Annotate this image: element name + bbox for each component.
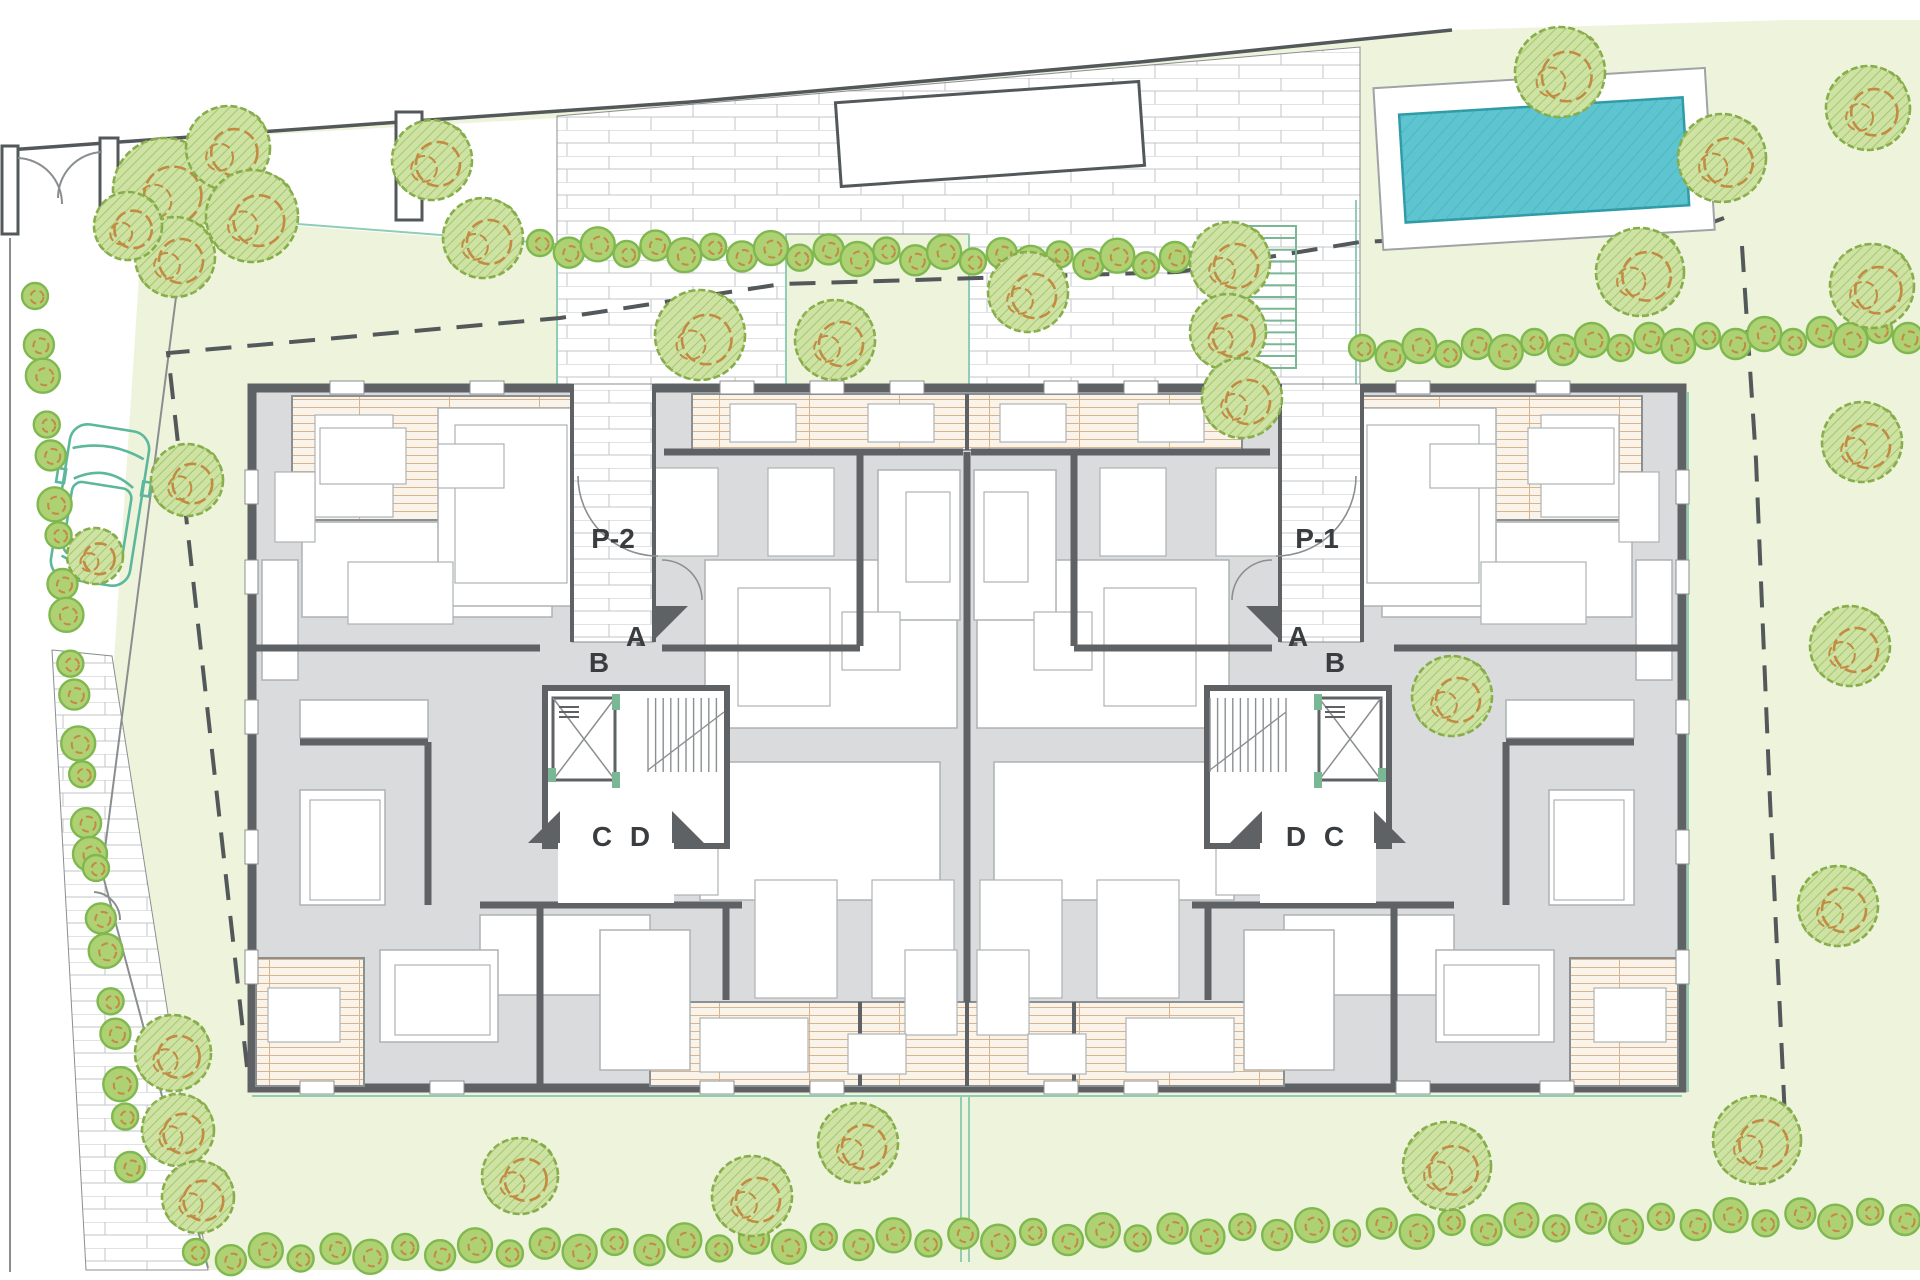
label-entry-p1: P-1 xyxy=(1295,523,1339,554)
furniture-item xyxy=(768,468,834,556)
elevator-door-accent xyxy=(612,772,620,788)
furniture-item xyxy=(1000,404,1066,442)
furniture-item xyxy=(1528,428,1614,484)
bush-body xyxy=(1471,1215,1501,1245)
site-plan-drawing: P-2 P-1 A B A B C D D C xyxy=(0,0,1920,1280)
hedge-bush-icon xyxy=(1721,329,1751,359)
hedge-bush-icon xyxy=(1575,323,1609,357)
window-opening xyxy=(1676,700,1689,734)
hedge-bush-icon xyxy=(787,245,813,271)
hedge-bush-icon xyxy=(61,726,95,760)
tree-icon xyxy=(1412,656,1492,736)
bush-body xyxy=(38,487,72,521)
hedge-bush-icon xyxy=(425,1240,455,1270)
bush-body xyxy=(1714,1198,1748,1232)
bush-body xyxy=(100,1019,130,1049)
tree-icon xyxy=(142,1094,214,1166)
hedge-bush-icon xyxy=(530,1229,560,1259)
bush-body xyxy=(948,1219,978,1249)
hedge-bush-icon xyxy=(1661,329,1695,363)
tree-icon xyxy=(443,198,523,278)
label-entry-p2: P-2 xyxy=(591,523,635,554)
elevator-plate-text xyxy=(1325,711,1345,713)
tree-icon xyxy=(482,1138,558,1214)
bush-body xyxy=(1462,329,1492,359)
bush-body xyxy=(1575,323,1609,357)
furniture-item xyxy=(1034,612,1092,670)
hedge-bush-icon xyxy=(392,1234,418,1260)
bush-body xyxy=(71,808,101,838)
hedge-bush-icon xyxy=(1548,335,1578,365)
hedge-bush-icon xyxy=(1376,341,1406,371)
tree-canopy-hatch xyxy=(1515,27,1605,117)
bush-body xyxy=(634,1235,664,1265)
bush-body xyxy=(877,1218,911,1252)
elevator-door-accent xyxy=(1314,694,1322,710)
window-opening xyxy=(1124,381,1158,394)
label-door-d-left: D xyxy=(630,821,650,852)
hedge-bush-icon xyxy=(1681,1210,1711,1240)
furniture-item xyxy=(848,1034,906,1074)
hedge-bush-icon xyxy=(115,1152,145,1182)
tree-icon xyxy=(1826,66,1910,150)
tree-icon xyxy=(151,444,223,516)
room xyxy=(300,700,428,738)
tree-icon xyxy=(1713,1096,1801,1184)
label-door-a-right: A xyxy=(1288,621,1308,652)
bush-body xyxy=(1160,242,1190,272)
furniture-item xyxy=(755,880,837,998)
hedge-bush-icon xyxy=(915,1230,941,1256)
bush-body xyxy=(1262,1220,1292,1250)
elevator-plate-text xyxy=(559,711,579,713)
window-opening xyxy=(720,381,754,394)
hedge-bush-icon xyxy=(1694,323,1720,349)
hedge-bush-icon xyxy=(98,988,124,1014)
bush-body xyxy=(1489,335,1523,369)
hedge-bush-icon xyxy=(563,1235,597,1269)
bush-body xyxy=(115,1152,145,1182)
window-opening xyxy=(1044,381,1078,394)
furniture-item xyxy=(1100,468,1166,556)
hedge-bush-icon xyxy=(1609,1210,1643,1244)
hedge-bush-icon xyxy=(814,234,844,264)
hedge-bush-icon xyxy=(1893,323,1920,353)
hedge-bush-icon xyxy=(877,1218,911,1252)
furniture-item xyxy=(310,800,380,900)
hedge-bush-icon xyxy=(26,359,60,393)
hedge-bush-icon xyxy=(1402,329,1436,363)
furniture-item xyxy=(395,965,490,1035)
furniture-item xyxy=(268,988,340,1042)
window-opening xyxy=(245,830,258,864)
bush-body xyxy=(458,1228,492,1262)
hedge-bush-icon xyxy=(86,903,116,933)
hedge-bush-icon xyxy=(1634,323,1664,353)
hedge-bush-icon xyxy=(34,412,60,438)
window-opening xyxy=(470,381,504,394)
furniture-item xyxy=(1138,404,1204,442)
elevator-plate-text xyxy=(1325,716,1345,718)
bush-body xyxy=(1681,1210,1711,1240)
hedge-bush-icon xyxy=(112,1104,138,1130)
tree-icon xyxy=(392,120,472,200)
bush-body xyxy=(1548,335,1578,365)
entrance-niche[interactable] xyxy=(558,843,674,903)
furniture-item xyxy=(906,492,950,582)
room xyxy=(1506,700,1634,738)
hedge-bush-icon xyxy=(1818,1205,1852,1239)
bush-body xyxy=(1402,329,1436,363)
window-opening xyxy=(1536,381,1570,394)
hedge-bush-icon xyxy=(1521,329,1547,355)
furniture-item xyxy=(438,444,504,488)
hedge-bush-icon xyxy=(1890,1205,1920,1235)
elevator-door-accent xyxy=(1314,772,1322,788)
bush-body xyxy=(425,1240,455,1270)
window-opening xyxy=(810,381,844,394)
hedge-bush-icon xyxy=(1608,335,1634,361)
window-opening xyxy=(700,1081,734,1094)
bush-body xyxy=(1053,1225,1083,1255)
hedge-bush-icon xyxy=(1435,341,1461,367)
hedge-bush-icon xyxy=(960,249,986,275)
window-opening xyxy=(245,560,258,594)
bush-body xyxy=(353,1240,387,1274)
hedge-bush-icon xyxy=(1489,335,1523,369)
bush-body xyxy=(727,241,757,271)
window-opening xyxy=(1676,560,1689,594)
bush-body xyxy=(1576,1204,1606,1234)
bush-body xyxy=(772,1230,806,1264)
hedge-bush-icon xyxy=(46,522,72,548)
bush-body xyxy=(103,1067,137,1101)
tree-icon xyxy=(67,528,123,584)
bush-body xyxy=(1785,1199,1815,1229)
bush-body xyxy=(754,231,788,265)
bush-body xyxy=(1890,1205,1920,1235)
furniture-item xyxy=(1444,965,1539,1035)
hedge-bush-icon xyxy=(69,761,95,787)
hedge-bush-icon xyxy=(1190,1220,1224,1254)
hedge-bush-icon xyxy=(1780,329,1806,355)
hedge-bush-icon xyxy=(38,487,72,521)
elevator-plate-text xyxy=(1325,706,1345,708)
furniture-item xyxy=(1594,988,1666,1042)
bush-body xyxy=(1376,341,1406,371)
label-door-d-right: D xyxy=(1286,821,1306,852)
hedge-bush-icon xyxy=(873,238,899,264)
bush-body xyxy=(563,1235,597,1269)
hedge-bush-icon xyxy=(288,1245,314,1271)
furniture-item xyxy=(984,492,1028,582)
window-opening xyxy=(1676,470,1689,504)
hedge-bush-icon xyxy=(1020,1219,1046,1245)
tree-icon xyxy=(1515,27,1605,117)
furniture-item xyxy=(1126,1018,1234,1072)
bush-body xyxy=(1893,323,1920,353)
room xyxy=(700,762,940,900)
hedge-bush-icon xyxy=(1133,252,1159,278)
hedge-bush-icon xyxy=(216,1245,246,1275)
room xyxy=(1244,930,1334,1070)
hedge-bush-icon xyxy=(667,1223,701,1257)
hedge-bush-icon xyxy=(1367,1209,1397,1239)
tree-icon xyxy=(655,290,745,380)
hedge-bush-icon xyxy=(706,1235,732,1261)
hedge-bush-icon xyxy=(1073,249,1103,279)
hedge-bush-icon xyxy=(1543,1215,1569,1241)
bush-body xyxy=(1295,1208,1329,1242)
furniture-item xyxy=(905,950,957,1035)
label-door-c-right: C xyxy=(1324,821,1344,852)
hedge-bush-icon xyxy=(1752,1210,1778,1236)
furniture-item xyxy=(348,562,453,624)
window-opening xyxy=(1676,830,1689,864)
hedge-bush-icon xyxy=(22,283,48,309)
tree-icon xyxy=(795,300,875,380)
bush-body xyxy=(61,726,95,760)
bush-body xyxy=(1818,1205,1852,1239)
hedge-bush-icon xyxy=(1158,1214,1188,1244)
hedge-bush-icon xyxy=(1086,1213,1120,1247)
tree-icon xyxy=(162,1161,234,1233)
tree-icon xyxy=(1403,1122,1491,1210)
hedge-bush-icon xyxy=(1053,1225,1083,1255)
hedge-bush-icon xyxy=(844,1230,874,1260)
hedge-bush-icon xyxy=(614,241,640,267)
hedge-bush-icon xyxy=(497,1240,523,1266)
tree-icon xyxy=(1190,222,1270,302)
hedge-bush-icon xyxy=(948,1219,978,1249)
hedge-bush-icon xyxy=(100,1019,130,1049)
tree-icon xyxy=(1190,294,1266,370)
tree-icon xyxy=(135,1015,211,1091)
hedge-bush-icon xyxy=(1400,1215,1434,1249)
window-opening xyxy=(1540,1081,1574,1094)
window-opening xyxy=(430,1081,464,1094)
hedge-bush-icon xyxy=(640,231,670,261)
hedge-bush-icon xyxy=(249,1233,283,1267)
hedge-bush-icon xyxy=(1648,1204,1674,1230)
hedge-bush-icon xyxy=(634,1235,664,1265)
furniture-item xyxy=(1216,468,1282,556)
hedge-bush-icon xyxy=(1349,335,1375,361)
bush-body xyxy=(1609,1210,1643,1244)
bush-body xyxy=(640,231,670,261)
room xyxy=(262,560,298,680)
window-opening xyxy=(1124,1081,1158,1094)
window-opening xyxy=(245,470,258,504)
pool-water-hatch xyxy=(1399,97,1689,222)
room xyxy=(994,762,1234,900)
bush-body xyxy=(581,227,615,261)
bush-body xyxy=(1073,249,1103,279)
bush-body xyxy=(1661,329,1695,363)
hedge-bush-icon xyxy=(700,234,726,260)
hedge-bush-icon xyxy=(1262,1220,1292,1250)
tree-icon xyxy=(1596,228,1684,316)
window-opening xyxy=(245,950,258,984)
tree-icon xyxy=(1798,866,1878,946)
bush-body xyxy=(814,234,844,264)
hedge-bush-icon xyxy=(527,230,553,256)
window-opening xyxy=(330,381,364,394)
hedge-bush-icon xyxy=(83,855,109,881)
bush-body xyxy=(36,440,66,470)
elevator-door-accent xyxy=(548,768,556,782)
room xyxy=(600,930,690,1070)
hedge-bush-icon xyxy=(458,1228,492,1262)
hedge-bush-icon xyxy=(1714,1198,1748,1232)
label-door-c-left: C xyxy=(592,821,612,852)
bush-body xyxy=(59,680,89,710)
bush-body xyxy=(26,359,60,393)
hedge-bush-icon xyxy=(602,1229,628,1255)
bush-body xyxy=(1721,329,1751,359)
furniture-item xyxy=(977,950,1029,1035)
hedge-bush-icon xyxy=(49,598,83,632)
bush-body xyxy=(86,903,116,933)
tree-icon xyxy=(988,252,1068,332)
hedge-bush-icon xyxy=(321,1234,351,1264)
hedge-bush-icon xyxy=(1439,1209,1465,1235)
hedge-bush-icon xyxy=(900,245,930,275)
furniture-item xyxy=(842,612,900,670)
furniture-item xyxy=(1619,472,1659,542)
hedge-bush-icon xyxy=(554,238,584,268)
entry-court-left[interactable] xyxy=(572,384,654,642)
bush-body xyxy=(841,242,875,276)
window-opening xyxy=(1044,1081,1078,1094)
hedge-bush-icon xyxy=(1160,242,1190,272)
hedge-bush-icon xyxy=(1857,1199,1883,1225)
bush-body xyxy=(321,1234,351,1264)
entrance-niche[interactable] xyxy=(1260,843,1376,903)
building-footprint: P-2 P-1 A B A B C D D C xyxy=(245,381,1689,1094)
elevator-door-accent xyxy=(612,694,620,710)
hedge-bush-icon xyxy=(1125,1225,1151,1251)
hedge-bush-icon xyxy=(1471,1215,1501,1245)
gate-post xyxy=(2,146,18,234)
bush-body xyxy=(1086,1213,1120,1247)
bush-body xyxy=(1634,323,1664,353)
hedge-bush-icon xyxy=(89,934,123,968)
bush-body xyxy=(249,1233,283,1267)
hedge-bush-icon xyxy=(927,235,961,269)
hedge-bush-icon xyxy=(1295,1208,1329,1242)
hedge-bush-icon xyxy=(103,1067,137,1101)
bush-body xyxy=(981,1225,1015,1259)
hedge-bush-icon xyxy=(1334,1220,1360,1246)
hedge-bush-icon xyxy=(1807,317,1837,347)
bush-body xyxy=(49,598,83,632)
bush-body xyxy=(667,238,701,272)
furniture-item xyxy=(730,404,796,442)
window-opening xyxy=(300,1081,334,1094)
elevator-door-accent xyxy=(1378,768,1386,782)
hedge-bush-icon xyxy=(1504,1203,1538,1237)
furniture-item xyxy=(700,1018,808,1072)
hedge-bush-icon xyxy=(811,1224,837,1250)
window-opening xyxy=(245,700,258,734)
window-opening xyxy=(1676,950,1689,984)
bush-body xyxy=(927,235,961,269)
tree-icon xyxy=(1810,606,1890,686)
bush-body xyxy=(1158,1214,1188,1244)
tree-icon xyxy=(712,1156,792,1236)
bush-body xyxy=(24,330,54,360)
hedge-bush-icon xyxy=(841,242,875,276)
bush-body xyxy=(1747,317,1781,351)
bush-body xyxy=(1400,1215,1434,1249)
window-opening xyxy=(1396,381,1430,394)
hedge-bush-icon xyxy=(71,808,101,838)
hedge-bush-icon xyxy=(57,651,83,677)
bush-body xyxy=(1190,1220,1224,1254)
window-opening xyxy=(810,1081,844,1094)
hedge-bush-icon xyxy=(1747,317,1781,351)
tree-icon xyxy=(94,192,162,260)
hedge-bush-icon xyxy=(772,1230,806,1264)
hedge-bush-icon xyxy=(1100,239,1134,273)
room xyxy=(1636,560,1672,680)
furniture-item xyxy=(868,404,934,442)
hedge-bush-icon xyxy=(1462,329,1492,359)
bush-body xyxy=(216,1245,246,1275)
hedge-bush-icon xyxy=(1229,1214,1255,1240)
elevator-plate-text xyxy=(559,706,579,708)
tree-icon xyxy=(1678,114,1766,202)
bush-body xyxy=(844,1230,874,1260)
bush-body xyxy=(900,245,930,275)
hedge-bush-icon xyxy=(727,241,757,271)
furniture-item xyxy=(1481,562,1586,624)
label-door-b-right: B xyxy=(1325,647,1345,678)
label-door-b-left: B xyxy=(589,647,609,678)
window-opening xyxy=(890,381,924,394)
tree-icon xyxy=(818,1103,898,1183)
hedge-bush-icon xyxy=(581,227,615,261)
bush-body xyxy=(1807,317,1837,347)
furniture-item xyxy=(1097,880,1179,998)
hedge-bush-icon xyxy=(183,1239,209,1265)
elevator-plate-text xyxy=(559,716,579,718)
bush-body xyxy=(554,238,584,268)
hedge-bush-icon xyxy=(353,1240,387,1274)
tree-icon xyxy=(206,170,298,262)
furniture-item xyxy=(1554,800,1624,900)
hedge-bush-icon xyxy=(1785,1199,1815,1229)
hedge-bush-icon xyxy=(1576,1204,1606,1234)
furniture-item xyxy=(275,472,315,542)
bush-body xyxy=(89,934,123,968)
entry-court-right[interactable] xyxy=(1280,384,1362,642)
tree-icon xyxy=(1830,244,1914,328)
bush-body xyxy=(667,1223,701,1257)
bush-body xyxy=(1100,239,1134,273)
tree-icon xyxy=(1822,402,1902,482)
furniture-item xyxy=(320,428,406,484)
furniture-item xyxy=(1028,1034,1086,1074)
furniture-item xyxy=(652,468,718,556)
tree-icon xyxy=(1202,358,1282,438)
bush-body xyxy=(530,1229,560,1259)
hedge-bush-icon xyxy=(36,440,66,470)
bush-body xyxy=(1504,1203,1538,1237)
hedge-bush-icon xyxy=(754,231,788,265)
window-opening xyxy=(1396,1081,1430,1094)
